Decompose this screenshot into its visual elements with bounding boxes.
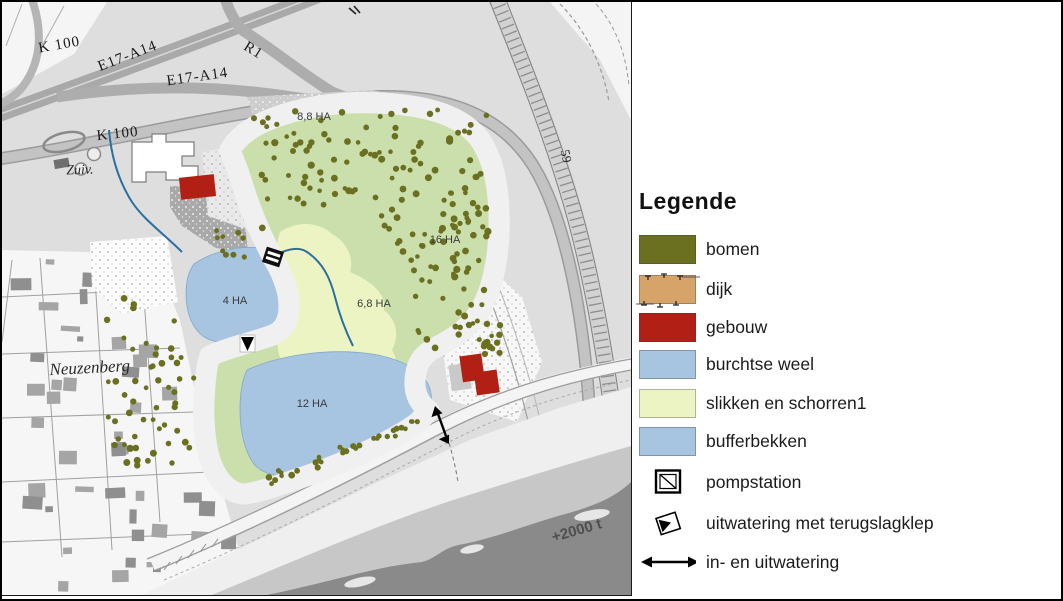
legend-label: pompstation xyxy=(706,472,801,493)
pompstation-icon xyxy=(639,466,696,498)
burchtse-weel-swatch xyxy=(639,350,696,379)
label-area-88: 8,8 HA xyxy=(297,111,331,123)
legend-row-burchtse-weel: burchtse weel xyxy=(639,348,814,380)
legend-title: Legende xyxy=(639,188,737,215)
legend-row-gebouw: gebouw xyxy=(639,311,767,343)
legend-row-pompstation: pompstation xyxy=(639,466,801,498)
legend-row-terugslagklep: uitwatering met terugslagklep xyxy=(639,507,934,539)
bufferbekken-swatch xyxy=(639,427,696,456)
legend-label: burchtse weel xyxy=(706,354,814,375)
label-area-4: 4 HA xyxy=(223,295,248,307)
legend-label: dijk xyxy=(706,279,732,300)
terugslagklep-icon xyxy=(639,507,696,539)
legend-label: gebouw xyxy=(706,317,767,338)
legend-panel: Legende bomen dijk gebouw xyxy=(632,2,1061,599)
label-area-12: 12 HA xyxy=(297,398,328,410)
label-zuiv: Zuiv. xyxy=(66,163,94,179)
gebouw-swatch xyxy=(639,313,696,342)
gebouw-1 xyxy=(179,174,216,200)
label-area-68: 6,8 HA xyxy=(357,298,391,310)
map-svg: K 100 E17-A14 R1 E17-A14 K 100 59 Zuiv. … xyxy=(2,2,631,595)
legend-label: in- en uitwatering xyxy=(706,552,839,573)
dijk-swatch xyxy=(639,275,696,304)
double-arrow-icon xyxy=(639,546,696,578)
legend-label: slikken en schorren1 xyxy=(706,393,867,414)
legend-row-dijk: dijk xyxy=(639,273,732,305)
slikken-swatch xyxy=(639,389,696,418)
label-area-16: 16 HA xyxy=(430,234,461,246)
legend-label: bufferbekken xyxy=(706,431,807,452)
terugslagklep-icon-map xyxy=(240,335,255,352)
legend-row-slikken: slikken en schorren1 xyxy=(639,387,867,419)
legend-row-bomen: bomen xyxy=(639,233,760,265)
map-panel: K 100 E17-A14 R1 E17-A14 K 100 59 Zuiv. … xyxy=(2,2,632,596)
legend-row-in-uitwatering: in- en uitwatering xyxy=(639,546,839,578)
bomen-swatch xyxy=(639,235,696,264)
figure: K 100 E17-A14 R1 E17-A14 K 100 59 Zuiv. … xyxy=(0,0,1063,601)
dijk-ticks xyxy=(636,271,701,310)
legend-label: bomen xyxy=(706,239,760,260)
legend-row-bufferbekken: bufferbekken xyxy=(639,425,807,457)
legend-label: uitwatering met terugslagklep xyxy=(706,513,934,534)
